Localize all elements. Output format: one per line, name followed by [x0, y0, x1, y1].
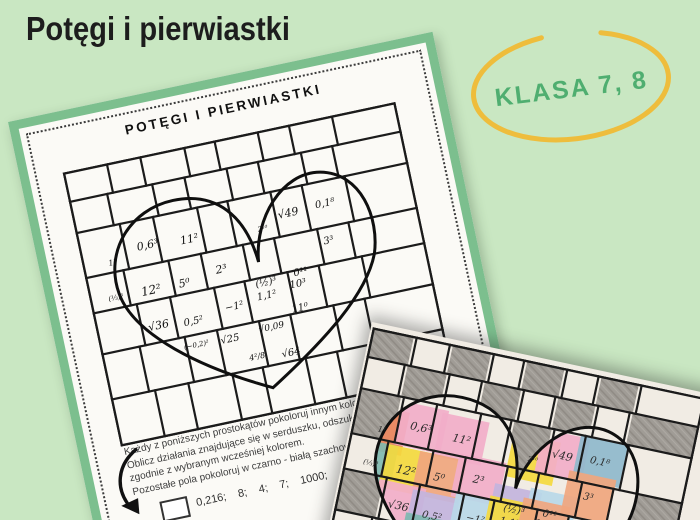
math-expression: (−0,2)²	[183, 339, 210, 352]
math-expression: √36	[147, 317, 170, 334]
sketch-oval-icon: KLASA 7, 8	[456, 12, 700, 164]
math-expression: √25	[220, 332, 241, 347]
math-expression: 3³	[323, 234, 335, 247]
math-expression: 2³	[213, 262, 228, 277]
page-title: Potęgi i pierwiastki	[26, 10, 290, 49]
math-expression: 12²	[140, 281, 163, 299]
math-expression: 0,1⁸	[314, 196, 336, 211]
math-expression: √49	[276, 205, 299, 222]
math-expression: −1²	[224, 300, 245, 315]
math-expression: 11²	[179, 231, 200, 248]
math-expression: 2¹⁰	[256, 224, 269, 234]
math-expression: 10³	[289, 277, 308, 291]
poster-background: POTĘGI I PIERWIASTKI 1¹0,6³11²2¹⁰√490,1⁸…	[0, 0, 700, 520]
badge-label: KLASA 7, 8	[493, 66, 649, 113]
klasa-badge: KLASA 7, 8	[456, 12, 700, 164]
heart-grid-colored: 1¹0,6³11²2¹⁰√490,1⁸(⅓)³12²5⁰2³(½)³0¹¹3³√…	[315, 327, 700, 520]
math-expression: 0,6³	[136, 236, 160, 253]
math-expression: (⅓)³	[362, 458, 379, 469]
math-expression: 3³	[582, 491, 594, 504]
math-expression: 2³	[471, 472, 486, 487]
math-expression: 1,1²	[256, 289, 278, 304]
math-expression: 5⁰	[177, 276, 191, 291]
math-expression: 4²/8	[247, 351, 266, 363]
math-expression: 1¹	[108, 257, 118, 268]
answer-color-box	[159, 496, 191, 520]
math-expression: 11⁰	[291, 301, 310, 315]
math-expression: 0¹¹	[542, 508, 558, 520]
math-expression: 0,5²	[183, 314, 205, 329]
